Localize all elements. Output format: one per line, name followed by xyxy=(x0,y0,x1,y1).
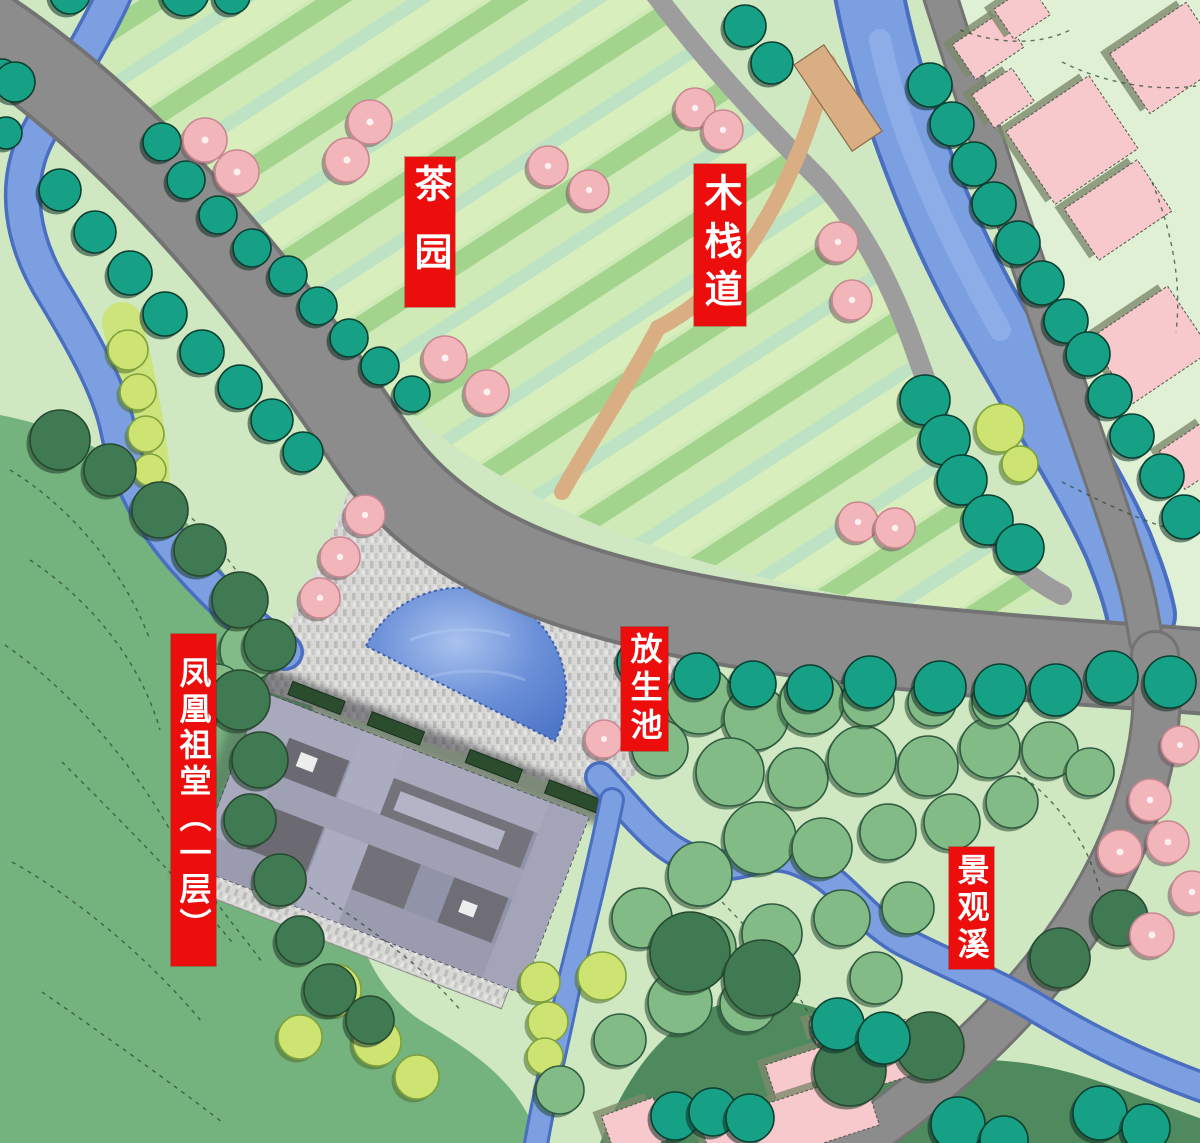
tree-dark-green xyxy=(244,619,296,671)
label-text: 景观溪 xyxy=(956,853,988,964)
tree-dark-green xyxy=(254,854,306,906)
street-tree-teal xyxy=(1110,414,1154,458)
street-tree-teal xyxy=(299,287,337,325)
street-tree-teal xyxy=(108,251,152,295)
label-phoenix-ancestral-hall: 凤凰祖堂（一层） xyxy=(171,634,216,966)
tree-dark-green xyxy=(346,996,394,1044)
street-tree-teal xyxy=(724,5,766,47)
street-tree-teal xyxy=(726,1094,774,1142)
tree-green xyxy=(828,726,896,794)
street-tree-teal xyxy=(1088,374,1132,418)
tree-green xyxy=(898,736,958,796)
tree-green xyxy=(594,1014,646,1066)
plan-drawing xyxy=(0,0,1200,1143)
tree-green xyxy=(850,952,902,1004)
tree-dark-green xyxy=(650,912,730,992)
label-release-pond: 放生池 xyxy=(621,627,668,751)
label-text: 茶园 xyxy=(411,164,449,300)
street-tree-teal xyxy=(914,661,966,713)
shrub-yellow xyxy=(108,330,148,370)
label-text: 凤凰祖堂（一层） xyxy=(178,656,210,944)
street-tree-teal xyxy=(787,665,833,711)
street-tree-teal xyxy=(74,211,116,253)
shrub-yellow xyxy=(278,1015,322,1059)
shrub-yellow xyxy=(528,1002,568,1042)
tree-dark-green xyxy=(212,572,268,628)
street-tree-teal xyxy=(751,42,793,84)
tree-dark-green xyxy=(232,732,288,788)
tree-green xyxy=(814,890,870,946)
tree-green xyxy=(668,842,732,906)
street-tree-teal xyxy=(972,182,1016,226)
shrub-yellow xyxy=(1002,446,1038,482)
label-text: 木栈道 xyxy=(701,173,739,317)
tree-green xyxy=(924,794,980,850)
tree-dark-green xyxy=(224,794,276,846)
tree-green xyxy=(724,802,796,874)
street-tree-teal xyxy=(199,196,237,234)
street-tree-teal xyxy=(143,123,181,161)
tree-green xyxy=(882,882,934,934)
street-tree-teal xyxy=(674,653,720,699)
street-tree-teal xyxy=(1030,664,1082,716)
street-tree-teal xyxy=(996,221,1040,265)
street-tree-teal xyxy=(996,524,1044,572)
street-tree-teal xyxy=(844,656,896,708)
street-tree-teal xyxy=(1066,332,1110,376)
street-tree-teal xyxy=(180,330,224,374)
shrub-yellow xyxy=(134,454,166,486)
tree-dark-green xyxy=(30,410,90,470)
tree-dark-green xyxy=(174,524,226,576)
tree-green xyxy=(792,818,852,878)
street-tree-teal xyxy=(1086,651,1138,703)
street-tree-teal xyxy=(218,365,262,409)
street-tree-teal xyxy=(974,664,1026,716)
street-tree-teal xyxy=(167,161,205,199)
street-tree-teal xyxy=(394,376,430,412)
tree-green xyxy=(986,776,1038,828)
street-tree-teal xyxy=(908,63,952,107)
tree-dark-green xyxy=(132,482,188,538)
street-tree-teal xyxy=(931,1097,985,1143)
street-tree-teal xyxy=(283,432,323,472)
tree-dark-green xyxy=(276,916,324,964)
label-text: 放生池 xyxy=(629,632,661,746)
tree-dark-green xyxy=(1030,928,1090,988)
street-tree-teal xyxy=(361,347,399,385)
tree-dark-green xyxy=(210,670,270,730)
tree-dark-green xyxy=(84,444,136,496)
street-tree-teal xyxy=(1140,454,1184,498)
street-tree-teal xyxy=(930,102,974,146)
tree-green xyxy=(1066,748,1114,796)
label-wooden-boardwalk: 木栈道 xyxy=(694,164,746,326)
shrub-yellow xyxy=(120,374,156,410)
street-tree-teal xyxy=(952,142,996,186)
label-landscape-stream: 景观溪 xyxy=(949,847,994,969)
shrub-yellow xyxy=(520,962,560,1002)
label-tea-garden: 茶园 xyxy=(405,157,455,307)
tree-green xyxy=(860,804,916,860)
street-tree-teal xyxy=(251,399,293,441)
street-tree-teal xyxy=(269,256,307,294)
tree-green xyxy=(696,738,764,806)
tree-green xyxy=(768,748,828,808)
shrub-yellow xyxy=(395,1055,439,1099)
shrub-yellow xyxy=(128,416,164,452)
street-tree-teal xyxy=(330,319,368,357)
street-tree-teal xyxy=(39,169,81,211)
street-tree-teal xyxy=(1122,1104,1170,1143)
street-tree-teal xyxy=(858,1012,910,1064)
tree-dark-green xyxy=(724,940,800,1016)
street-tree-teal xyxy=(0,62,35,102)
shrub-yellow xyxy=(976,404,1024,452)
street-tree-teal xyxy=(1162,495,1200,539)
street-tree-teal xyxy=(233,229,271,267)
tree-green xyxy=(536,1066,584,1114)
street-tree-teal xyxy=(143,292,187,336)
street-tree-teal xyxy=(1144,656,1196,708)
street-tree-teal xyxy=(1020,261,1064,305)
landscape-plan-map: 茶园 木栈道 放生池 凤凰祖堂（一层） 景观溪 xyxy=(0,0,1200,1143)
street-tree-teal xyxy=(730,661,776,707)
shrub-yellow xyxy=(578,952,626,1000)
